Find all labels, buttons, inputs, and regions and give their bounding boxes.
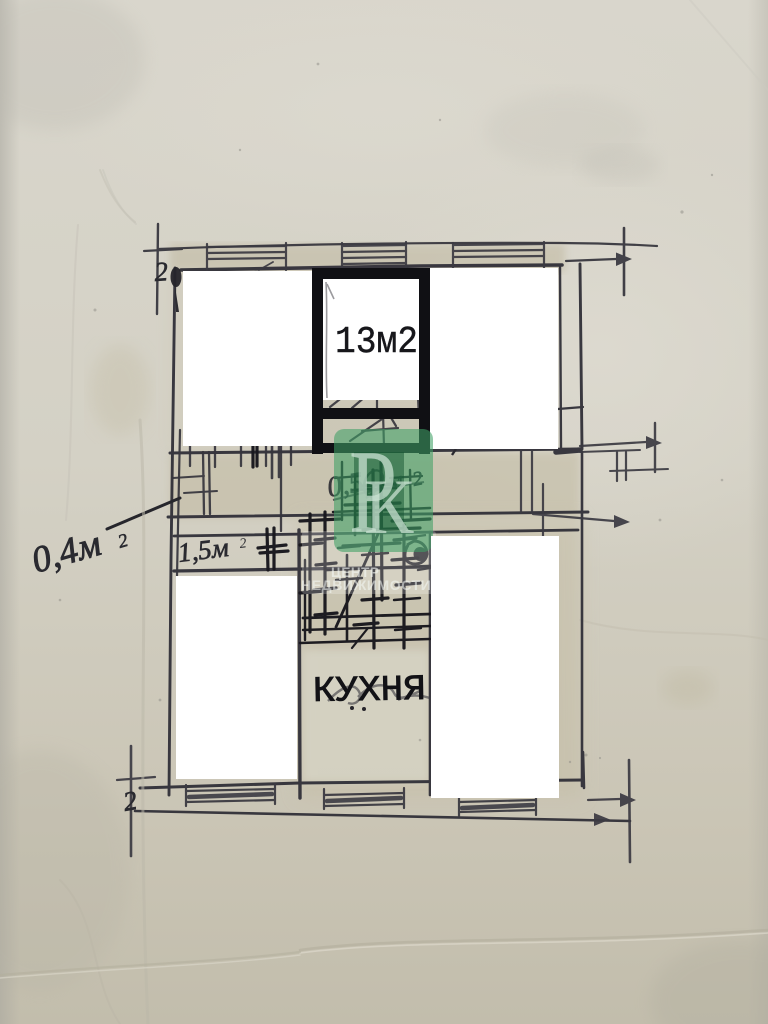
svg-text:13м2: 13м2 (335, 321, 418, 364)
svg-text:КУХНЯ: КУХНЯ (312, 669, 426, 712)
svg-text:1,5м: 1,5м (176, 532, 230, 568)
svg-text:НЕДВИЖИМОСТИ: НЕДВИЖИМОСТИ (301, 577, 431, 593)
svg-text:2: 2 (153, 256, 169, 287)
svg-text:К: К (364, 464, 414, 550)
